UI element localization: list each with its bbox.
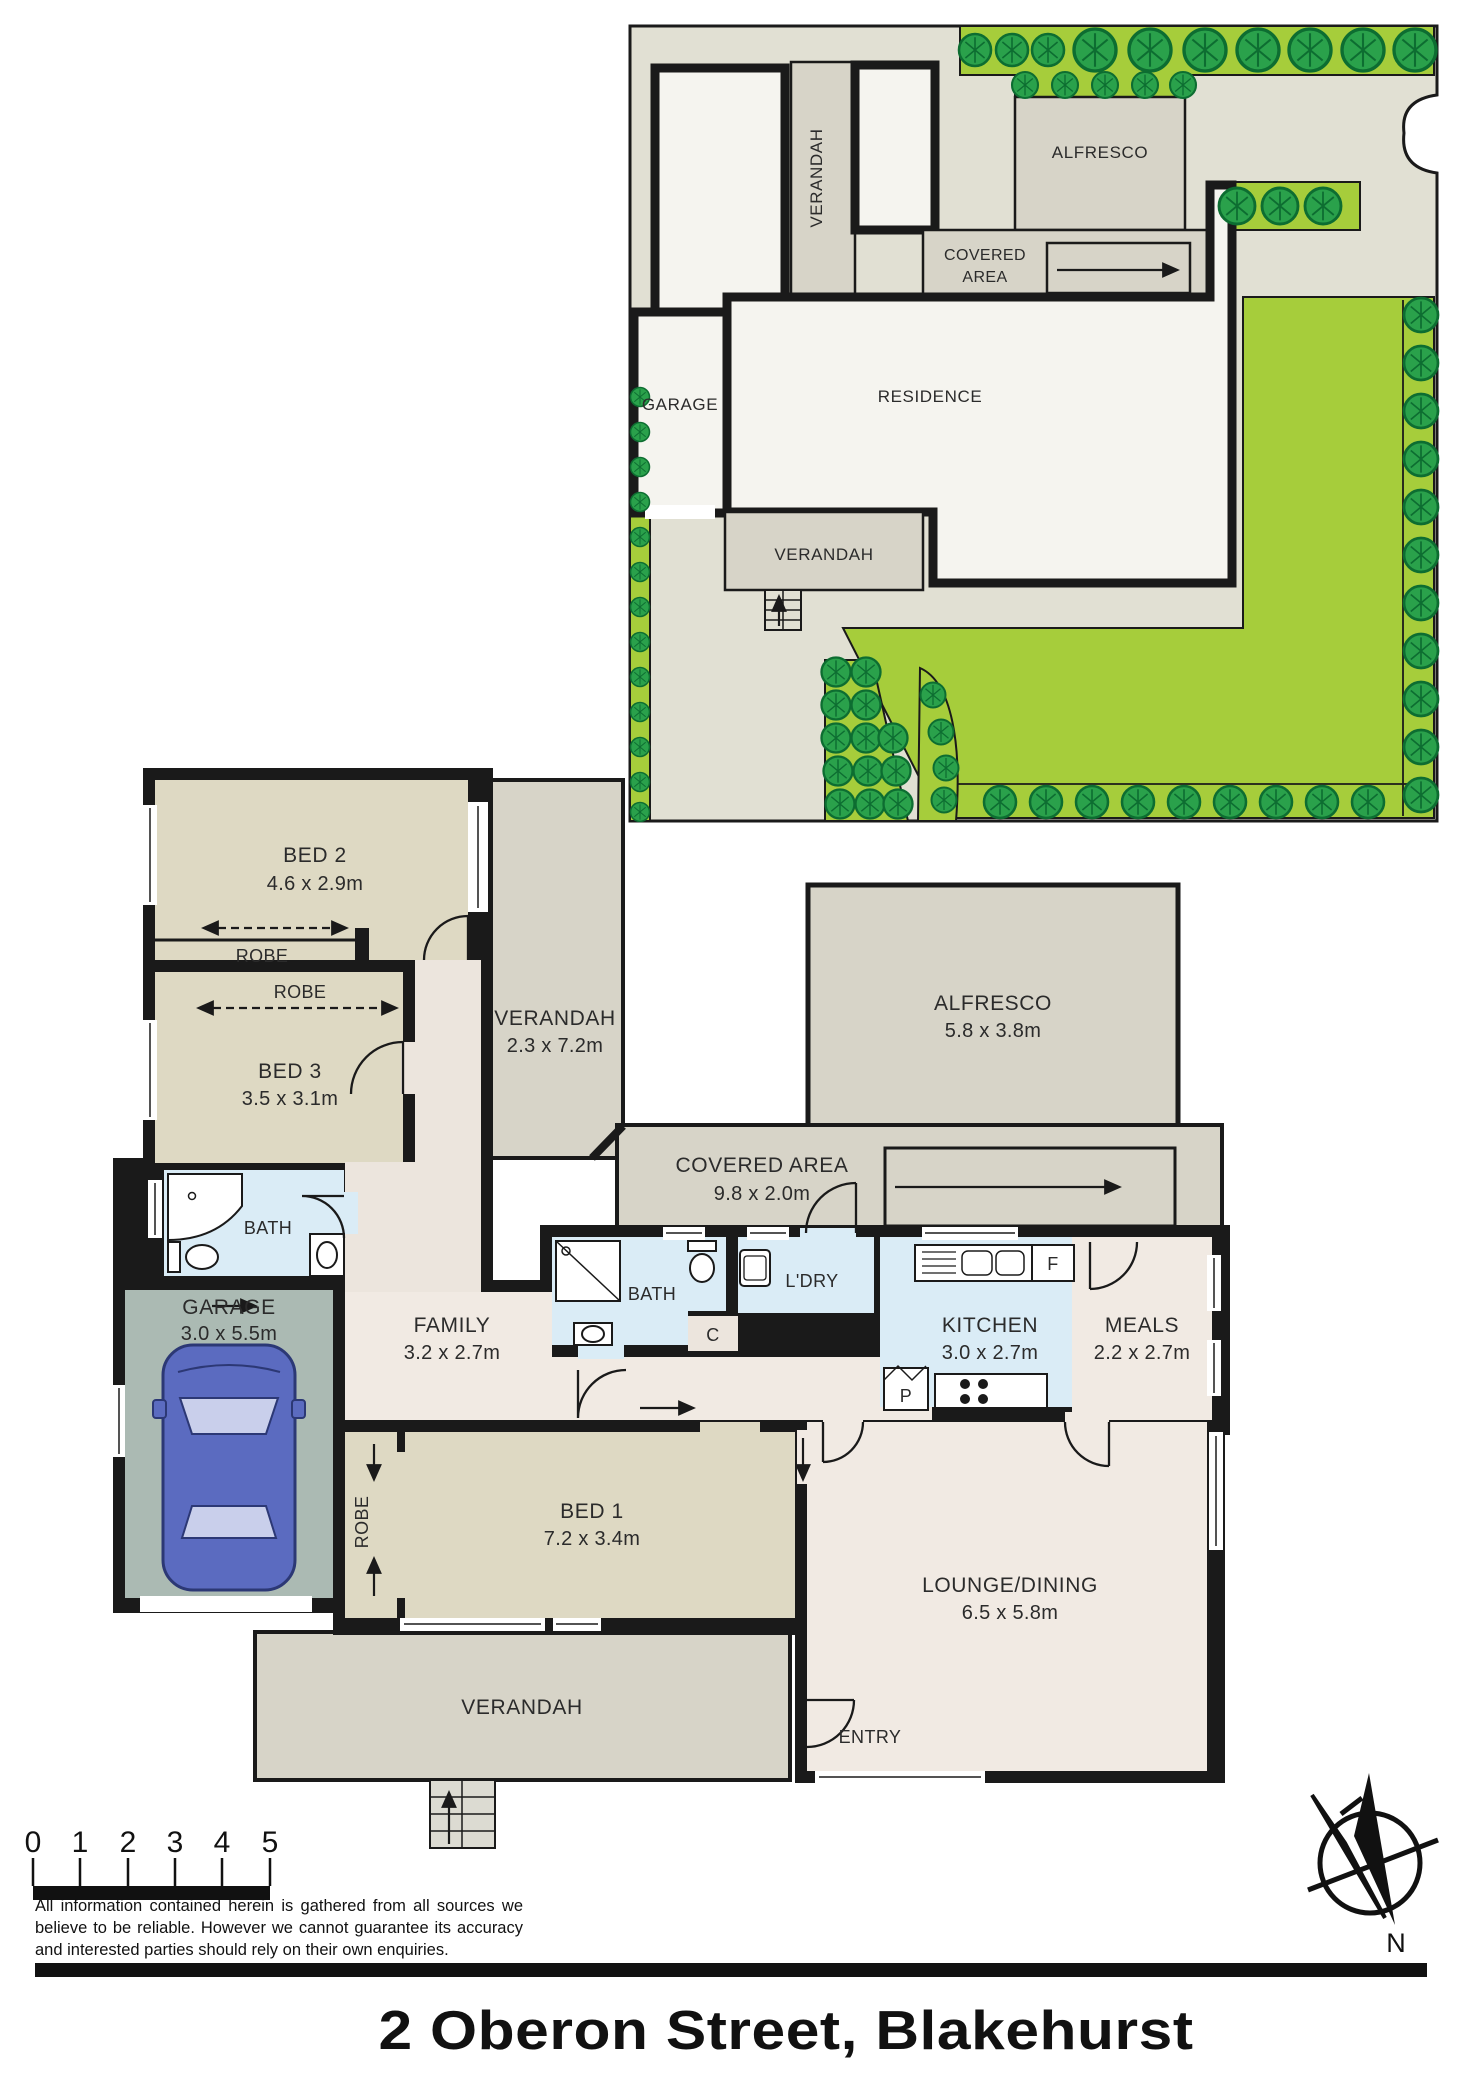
car-rear-window [182,1506,276,1538]
wall-cupboard [688,1311,738,1316]
fridge-label: F [1047,1254,1058,1274]
site-garage-door-opening [645,505,715,519]
family-label: FAMILY [414,1314,491,1337]
tree-row-bottom [984,786,1384,818]
site-residence-wing-left [655,68,785,316]
site-garage-label: GARAGE [642,395,718,414]
toilet-mid-bowl [690,1254,714,1282]
alfresco-label: ALFRESCO [934,992,1052,1015]
meals-dims: 2.2 x 2.7m [1094,1342,1190,1364]
front-stairs [430,1780,495,1848]
toilet-left-bowl [186,1245,218,1269]
opening-laundry [800,1228,856,1240]
bed3-dims: 3.5 x 3.1m [242,1088,338,1110]
room-bed2 [155,780,468,960]
scale-ticks [33,1858,270,1886]
site-covered-label-2: AREA [962,269,1007,286]
site-verandah-front-label: VERANDAH [774,545,873,564]
site-stairs [765,590,801,630]
car-windshield [180,1398,278,1434]
family-dims: 3.2 x 2.7m [404,1342,500,1364]
divider-bar [35,1963,1427,1977]
scale-bar: 0 1 2 3 4 5 [25,1826,279,1900]
garage-label: GARAGE [182,1296,275,1319]
car-mirror-left [153,1400,166,1418]
compass-north-label: N [1386,1928,1406,1958]
floorplan-page: RESIDENCE GARAGE VERANDAH ALFRESCO COVER… [0,0,1472,2083]
bath-mid-label: BATH [628,1284,676,1304]
robe3-label: ROBE [274,982,327,1002]
site-residence-wing-mid [855,65,935,230]
site-alfresco-label: ALFRESCO [1052,143,1148,162]
room-bed1 [345,1432,795,1618]
disclaimer-text: All information contained herein is gath… [35,1896,523,1962]
room-hall-kitchen [552,1357,932,1420]
stove-counter [935,1374,1047,1408]
compass-tick [1341,1798,1362,1814]
basin-mid [582,1326,604,1342]
robe2-label: ROBE [236,946,289,966]
verandah-side-dims: 2.3 x 7.2m [507,1035,603,1057]
lounge-label: LOUNGE/DINING [922,1574,1098,1597]
opening-bed1 [700,1422,760,1436]
fp-verandah-side [487,780,623,1158]
scale-1: 1 [72,1826,89,1859]
pantry-label: P [900,1386,912,1406]
toilet-left-tank [168,1242,180,1272]
site-verandah-side-label: VERANDAH [807,128,826,227]
robe2-wall-stub [355,928,369,972]
site-residence-label: RESIDENCE [878,387,983,406]
laundry-label: L'DRY [785,1271,838,1291]
opening-bath-left [344,1192,358,1234]
scale-5: 5 [262,1826,279,1859]
room-hallway-lower [345,1162,481,1292]
site-ramp [1047,243,1190,293]
site-plan: RESIDENCE GARAGE VERANDAH ALFRESCO COVER… [630,26,1438,822]
site-alfresco [1015,97,1185,230]
site-covered-label-1: COVERED [944,247,1026,264]
opening-meals-lounge [1065,1412,1109,1426]
page-title: 2 Oberon Street, Blakehurst [31,1998,1472,2062]
kitchen-dims: 3.0 x 2.7m [942,1342,1038,1364]
car-mirror-right [292,1400,305,1418]
bed1-label: BED 1 [560,1500,624,1523]
bath-left-label: BATH [244,1218,292,1238]
alfresco-dims: 5.8 x 3.8m [945,1020,1041,1042]
robe1-stub-bottom [397,1598,405,1618]
bed3-label: BED 3 [258,1060,322,1083]
car [153,1345,305,1590]
garage-dims: 3.0 x 5.5m [181,1323,277,1345]
robe1-stub-top [397,1432,405,1452]
meals-label: MEALS [1105,1314,1179,1337]
scale-3: 3 [167,1826,184,1859]
verandah-front-label: VERANDAH [461,1696,583,1719]
tree-row-mid [1219,188,1341,224]
tree-col-right [1404,298,1438,812]
compass: N [1308,1773,1438,1958]
scale-2: 2 [120,1826,137,1859]
bed2-label: BED 2 [283,844,347,867]
lounge-dims: 6.5 x 5.8m [962,1602,1058,1624]
plan-canvas: RESIDENCE GARAGE VERANDAH ALFRESCO COVER… [0,0,1472,2083]
garage-door-opening [140,1596,312,1612]
opening-hall-lounge [823,1412,863,1426]
bed2-dims: 4.6 x 2.9m [267,873,363,895]
robe1-label: ROBE [352,1496,372,1549]
covered-area-dims: 9.8 x 2.0m [714,1183,810,1205]
bed1-dims: 7.2 x 3.4m [544,1528,640,1550]
basin-left [317,1242,337,1268]
verandah-side-label: VERANDAH [494,1007,616,1030]
entry-label: ENTRY [839,1727,902,1747]
scale-4: 4 [214,1826,231,1859]
floor-plan: BED 2 4.6 x 2.9m ROBE ROBE BED 3 3.5 x 3… [113,768,1230,1848]
kitchen-label: KITCHEN [942,1314,1038,1337]
covered-area-label: COVERED AREA [676,1154,849,1177]
toilet-mid-tank [688,1241,716,1251]
scale-0: 0 [25,1826,42,1859]
cupboard-label: C [706,1325,719,1345]
